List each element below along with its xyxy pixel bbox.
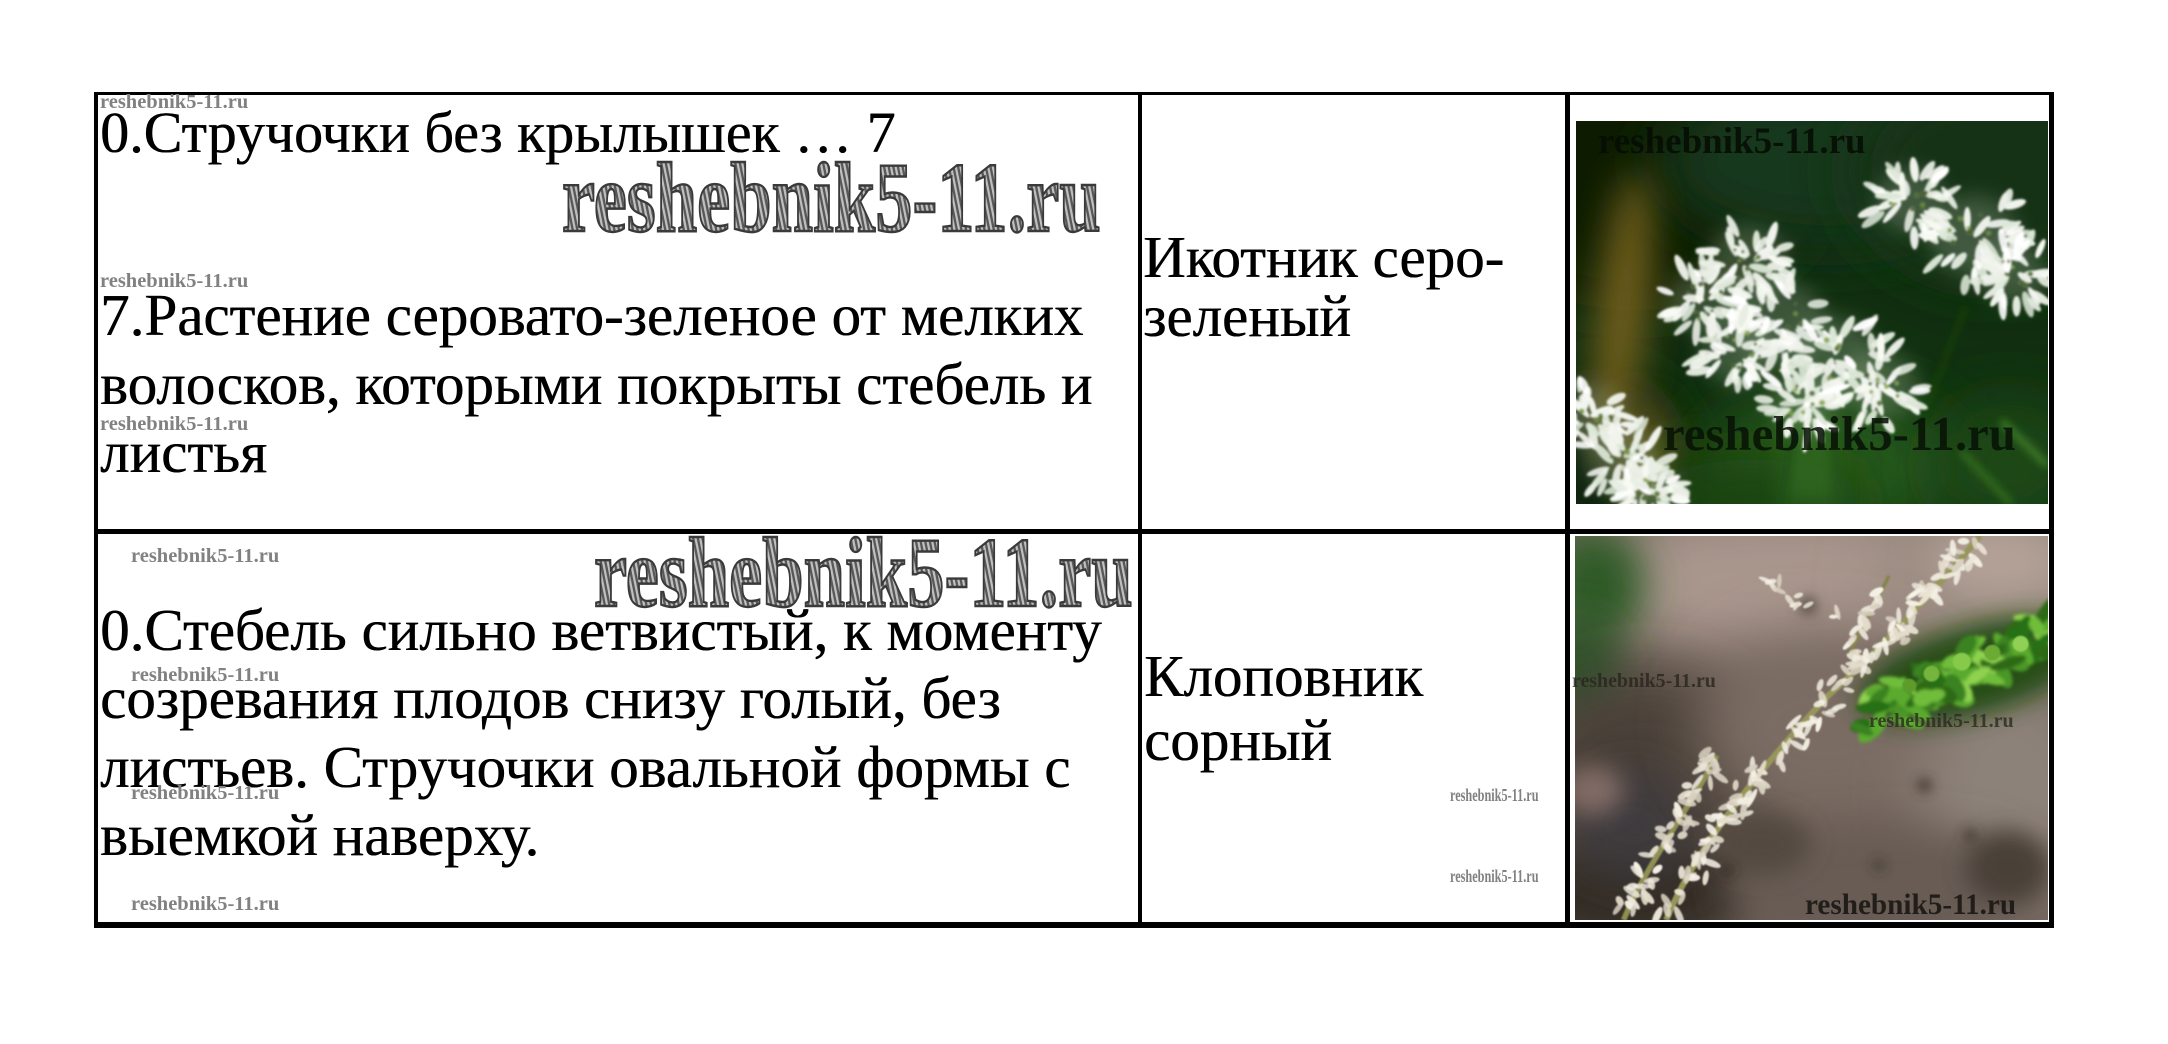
svg-text:reshebnik5-11.ru: reshebnik5-11.ru	[594, 522, 1133, 628]
svg-text:reshebnik5-11.ru: reshebnik5-11.ru	[562, 147, 1101, 253]
